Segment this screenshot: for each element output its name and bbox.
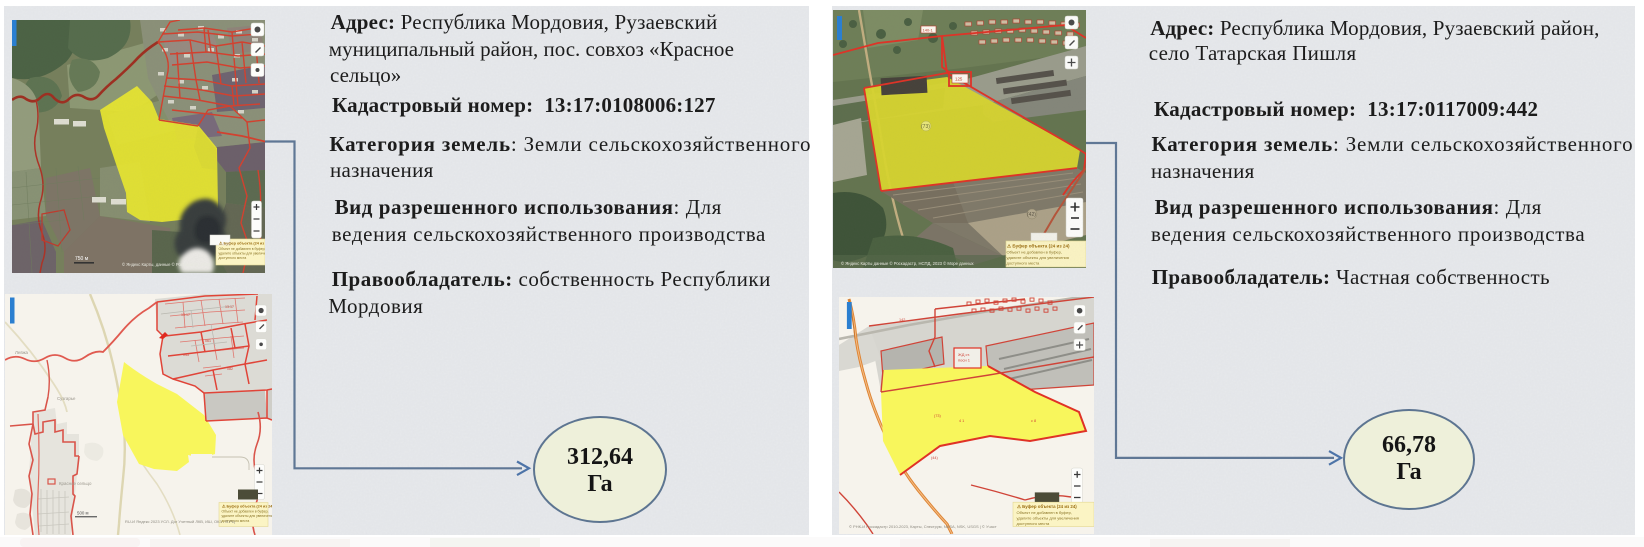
svg-text:750 м: 750 м <box>75 256 89 262</box>
svg-text:082: 082 <box>227 367 233 371</box>
svg-text:доступного места: доступного места <box>219 256 247 260</box>
svg-text:RU-И Яндекс 2023 УСЛ. Дог Учет: RU-И Яндекс 2023 УСЛ. Дог Учетный ЛКВ, И… <box>125 519 235 524</box>
svg-text:(44): (44) <box>931 456 938 460</box>
svg-text:поси 1: поси 1 <box>958 358 971 363</box>
svg-text:Сузгарье: Сузгарье <box>57 396 76 401</box>
svg-text:13:17: 13:17 <box>181 313 190 317</box>
svg-text:⚠ Буфер объекта (24 из 24): ⚠ Буфер объекта (24 из 24) <box>222 504 272 509</box>
svg-text:Красное сельцо: Красное сельцо <box>59 481 92 486</box>
svg-text:⚠ Буфер объекта (24 из 24): ⚠ Буфер объекта (24 из 24) <box>1017 504 1077 509</box>
svg-text:4 1: 4 1 <box>959 419 964 423</box>
svg-text:© Яндекс Карты, данные © Роска: © Яндекс Карты, данные © Роскадастр, 202… <box>122 262 211 267</box>
svg-text:Объект не добавлен в буфер,: Объект не добавлен в буфер, <box>222 510 269 514</box>
svg-text:Объект не добавлен в буфер,: Объект не добавлен в буфер, <box>1017 510 1072 515</box>
svg-text:500 м: 500 м <box>77 511 89 516</box>
svg-text:удалите объекты для увеличения: удалите объекты для увеличения <box>219 252 266 256</box>
svg-text:с 8: с 8 <box>1031 419 1036 423</box>
svg-text:удалите объекты для увеличения: удалите объекты для увеличения <box>1017 515 1079 520</box>
svg-text:Левжа: Левжа <box>15 350 29 355</box>
svg-text:142: 142 <box>899 318 905 322</box>
svg-text:удалите объекты для увеличения: удалите объекты для увеличения <box>222 514 273 518</box>
svg-text:061: 061 <box>205 339 211 343</box>
svg-text:045: 045 <box>183 353 189 357</box>
svg-text:Объект не добавлен в буфер,: Объект не добавлен в буфер, <box>219 247 266 251</box>
svg-text:© РНК-И Роскадастр 2010-2023,: © РНК-И Роскадастр 2010-2023, Карты, Спе… <box>849 524 997 529</box>
svg-text:⚠ Буфер объекта (24 из 24): ⚠ Буфер объекта (24 из 24) <box>219 241 265 246</box>
svg-text:(73): (73) <box>934 414 941 418</box>
svg-text:© Яндекс Карты данные © Роска: © Яндекс Карты данные © Роскадастр, НСПД… <box>841 261 975 266</box>
svg-text:13:17: 13:17 <box>225 305 234 309</box>
svg-text:ЖД ст.: ЖД ст. <box>958 352 970 357</box>
svg-text:доступного места: доступного места <box>1017 521 1051 526</box>
